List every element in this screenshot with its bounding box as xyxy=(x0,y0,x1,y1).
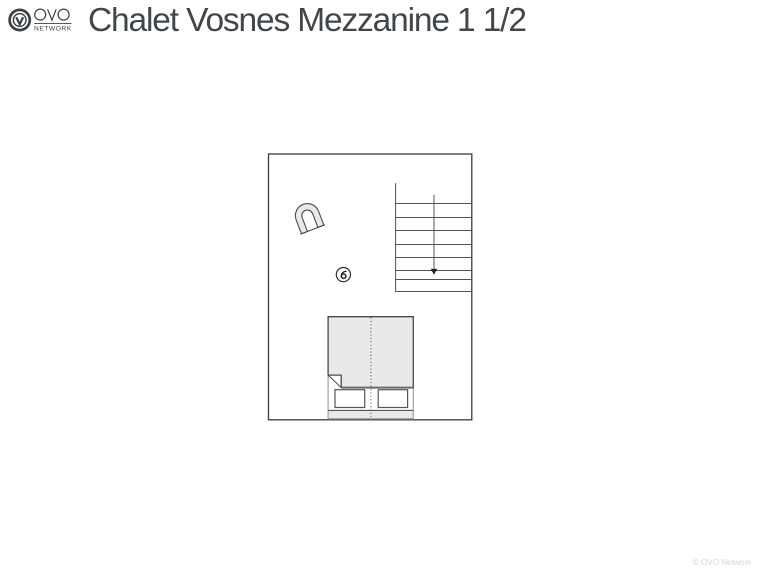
svg-text:NETWORK: NETWORK xyxy=(34,26,72,33)
